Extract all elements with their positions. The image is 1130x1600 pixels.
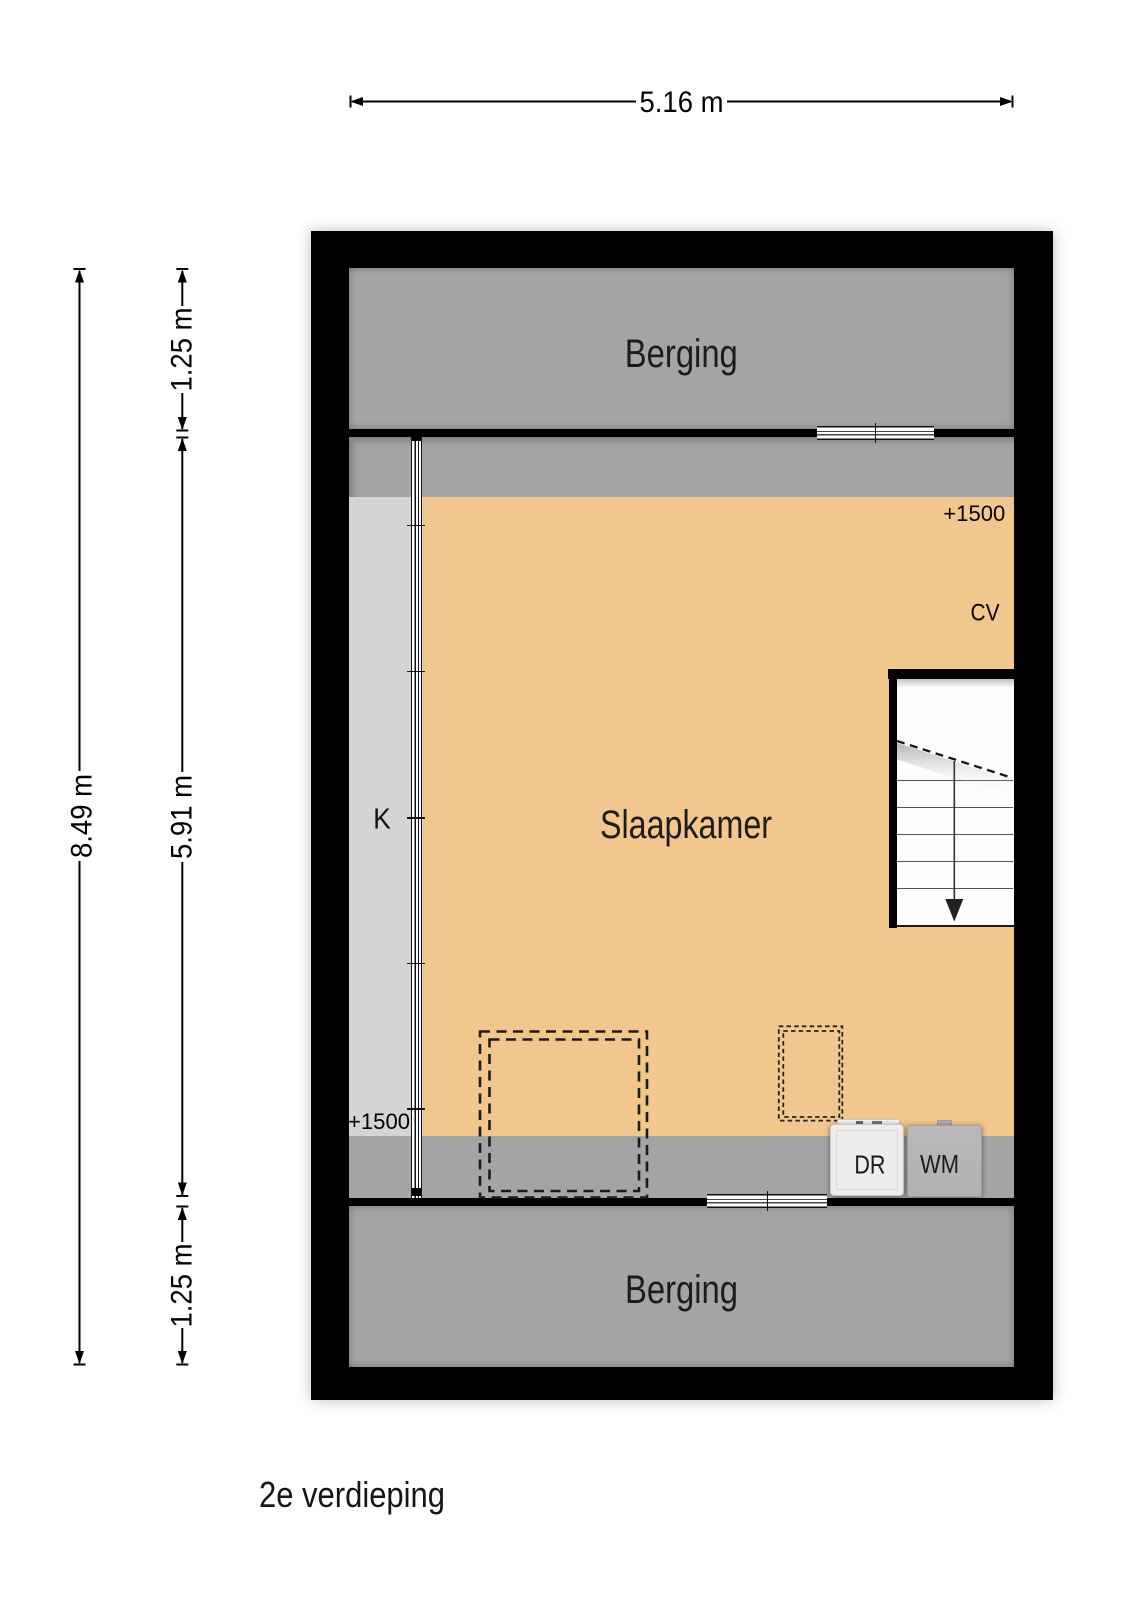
svg-text:1.25 m: 1.25 m [166,1244,199,1328]
svg-text:5.16 m: 5.16 m [640,86,724,119]
svg-text:1.25 m: 1.25 m [166,308,199,392]
svg-text:5.91 m: 5.91 m [166,775,199,859]
svg-text:8.49 m: 8.49 m [66,774,99,858]
